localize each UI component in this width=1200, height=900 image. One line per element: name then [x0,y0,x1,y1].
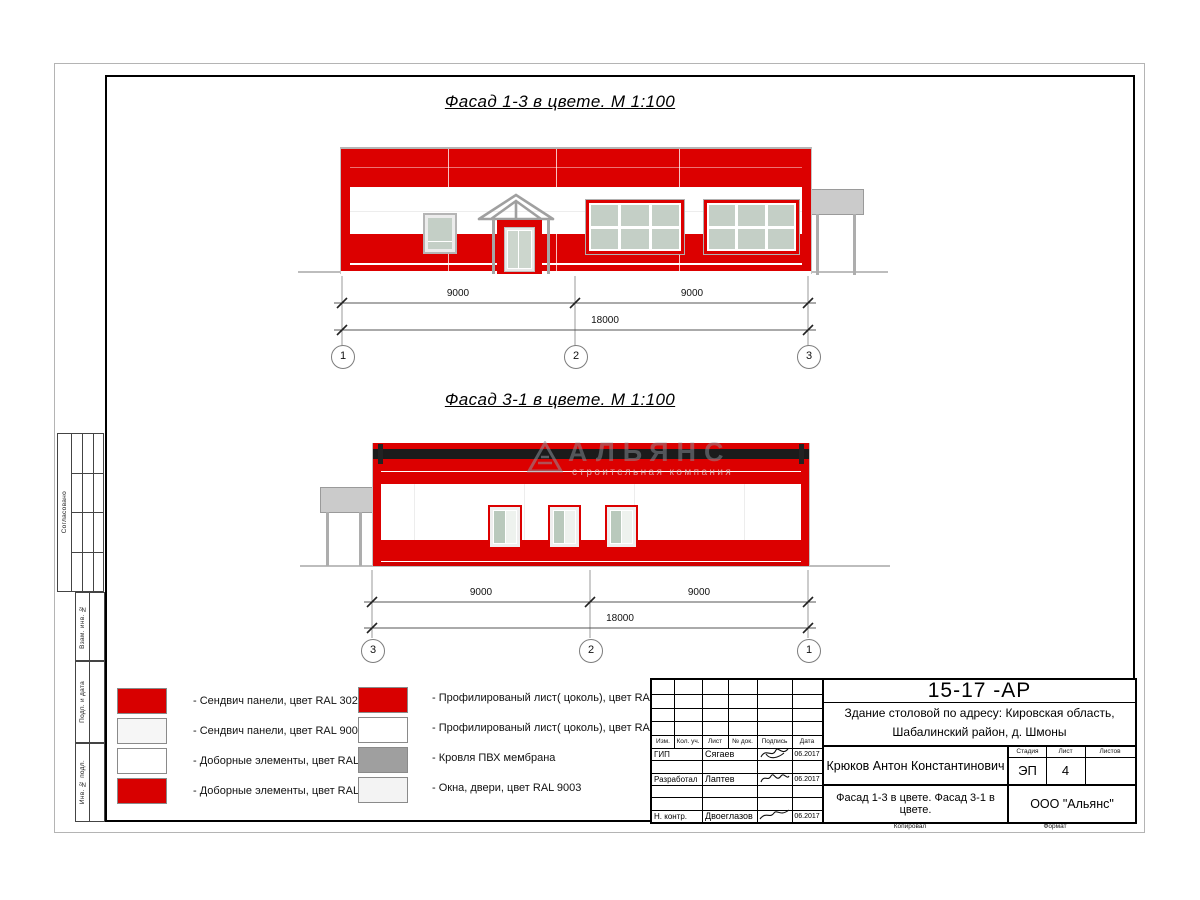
axis-mark-1: 1 [797,639,821,663]
watermark-tagline: строительная компания [572,467,733,478]
chief-name: Крюков Антон Константинович [824,747,1007,784]
legend-label: - Профилированый лист( цоколь), цвет RAL… [432,722,683,734]
row-role: ГИП [652,748,704,760]
signature-icon [758,744,791,762]
facade1-dim-total: 18000 [545,315,665,326]
facade1-dim-right: 9000 [632,288,752,299]
entrance-surround [497,220,542,274]
facade1-canopy-roof [810,189,864,215]
vzam-inv-box: Взам. инв. № [75,592,105,662]
stage-label: Стадия [1009,745,1046,757]
facade1-left-corner-trim [341,149,350,271]
legend-swatch-red [117,688,167,714]
signature-icon [758,806,791,823]
facade2-bottom-red-band [373,540,809,561]
legend-swatch-white [358,717,408,743]
facade1-canopy-leg [853,214,856,275]
facade1-dim-left: 9000 [398,288,518,299]
agreed-stamp-box: Согласовано [57,433,104,592]
facade1-plinth-strip [341,265,811,271]
object-name: Здание столовой по адресу: Кировская обл… [824,704,1135,745]
row-date: 06.2017 [792,748,822,760]
legend-swatch-offwhite [117,718,167,744]
legend-label: - Сендвич панели, цвет RAL 3020 [193,695,364,707]
window-glass [428,218,452,249]
agreed-label: Согласовано [61,491,68,533]
facade2-canopy-leg [359,512,362,566]
col-kol-uch: Кол. уч. [674,735,702,748]
row-role: Н. контр. [652,810,704,822]
col-izm: Изм. [652,735,674,748]
facade1-canopy-leg [816,214,819,275]
doc-number: 15-17 -АР [824,680,1135,702]
axis-mark-3: 3 [797,345,821,369]
facade2-left-bracket [378,444,383,464]
facade2-dimension-lines [330,570,850,642]
axis-mark-2: 2 [564,345,588,369]
facade1-window-a [586,200,684,254]
legend-swatch-offwhite [358,777,408,803]
porch-post [547,219,550,274]
inv-podl-label: Инв. № подл. [79,760,86,804]
facade2-canopy-roof [320,487,374,513]
facade1-title: Фасад 1-3 в цвете. М 1:100 [350,92,770,112]
row-date: 06.2017 [792,773,822,785]
facade1-building [340,147,812,274]
legend-label: - Сендвич панели, цвет RAL 9003 [193,725,364,737]
facade2-dim-right: 9000 [639,587,759,598]
facade2-canopy-leg [326,512,329,566]
row-date: 06.2017 [792,810,822,822]
legend-swatch-red [117,778,167,804]
copied-label: Копировал [860,821,960,831]
facade1-top-red-band [341,149,811,187]
drawing-sheet: Согласовано Взам. инв. № Подп. и дата Ин… [0,0,1200,900]
vzam-inv-label: Взам. инв. № [79,605,86,649]
row-name: Сягаев [702,748,760,760]
col-doc: № док. [728,735,757,748]
row-name: Двоеглазов [702,810,760,822]
legend-swatch-gray [358,747,408,773]
podp-data-box: Подп. и дата [75,660,105,744]
facade2-window [548,505,581,549]
inv-podl-box: Инв. № подл. [75,742,105,822]
entrance-door [504,227,535,272]
facade2-plinth-strip [373,562,809,566]
legend-swatch-white [117,748,167,774]
facade1-window-b [704,200,799,254]
row-role: Разработал [652,773,704,785]
sheets-value [1085,757,1135,784]
facade1-small-window [423,213,457,254]
facade2-dim-left: 9000 [421,587,541,598]
signature-icon [758,770,791,787]
format-label: Формат [1010,821,1100,831]
porch-post [492,219,495,274]
axis-mark-1: 1 [331,345,355,369]
facade2-window [605,505,638,549]
porch-gable-truss [477,192,555,222]
facade2-right-bracket [799,444,804,464]
facade2-dim-total: 18000 [560,613,680,624]
watermark-name: АЛЬЯНС [568,437,732,468]
sheet-label: Лист [1046,745,1085,757]
facade2-left-corner-trim [373,459,381,566]
company-logo-icon [527,441,563,473]
title-block: Изм. Кол. уч. Лист № док. Подпись Дата Г… [650,678,1137,824]
facade2-window [488,505,522,549]
row-name: Лаптев [702,773,760,785]
axis-mark-3: 3 [361,639,385,663]
legend-label: - Окна, двери, цвет RAL 9003 [432,782,581,794]
facade2-right-corner-trim [801,459,809,566]
axis-mark-2: 2 [579,639,603,663]
sheet-title: Фасад 1-3 в цвете. Фасад 3-1 в цвете. [824,786,1007,822]
legend-swatch-red [358,687,408,713]
legend-label: - Профилированый лист( цоколь), цвет RAL… [432,692,683,704]
facade2-title: Фасад 3-1 в цвете. М 1:100 [350,390,770,410]
sheets-label: Листов [1085,745,1135,757]
company-name: ООО "Альянс" [1009,786,1135,822]
facade1-right-corner-trim [802,149,811,271]
col-data: Дата [792,735,822,748]
col-list: Лист [702,735,728,748]
legend-label: - Кровля ПВХ мембрана [432,752,555,764]
stage-value: ЭП [1009,757,1046,784]
podp-data-label: Подп. и дата [79,681,86,723]
sheet-value: 4 [1046,757,1085,784]
